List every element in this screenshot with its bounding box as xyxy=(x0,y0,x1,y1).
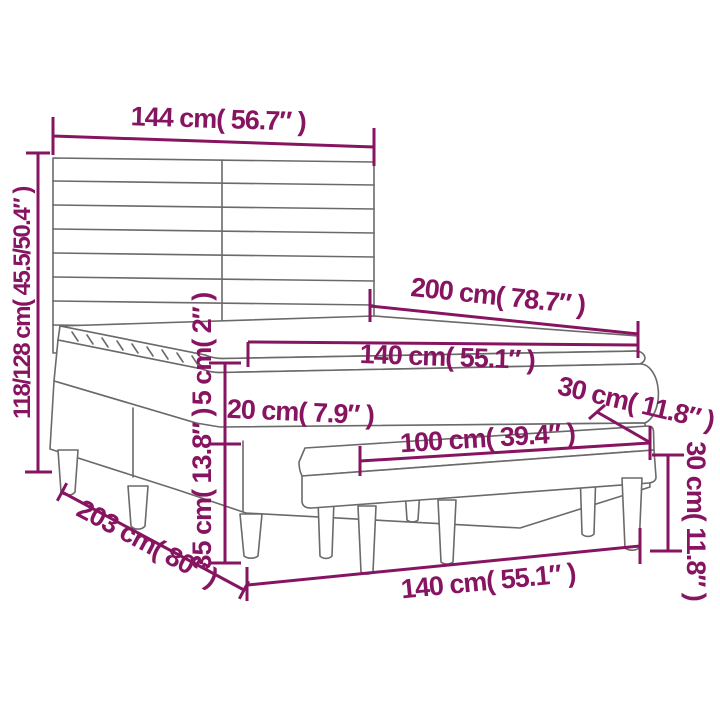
dimension-label-base-height: 35 cm( 13.8″ ) xyxy=(187,408,217,569)
dimension-label-headboard-height: 118/128 cm( 45.5/50.4″ ) xyxy=(9,187,36,419)
diagram-canvas: 144 cm( 56.7″ ) 118/128 cm( 45.5/50.4″ )… xyxy=(0,0,720,720)
dimension-bench-height: 30 cm( 11.8″ ) xyxy=(650,441,711,601)
bed-dimension-diagram: 144 cm( 56.7″ ) 118/128 cm( 45.5/50.4″ )… xyxy=(0,0,720,720)
dimension-label-bench-height: 30 cm( 11.8″ ) xyxy=(681,441,711,601)
dimension-label-mattress-width: 140 cm( 55.1″ ) xyxy=(359,339,535,375)
dimension-mattress-thickness: 20 cm( 7.9″ ) xyxy=(226,394,374,430)
dimension-label-topper-thickness: 5 cm( 2″ ) xyxy=(187,293,217,405)
dimension-label-mattress-thickness: 20 cm( 7.9″ ) xyxy=(226,394,374,430)
dimension-headboard-height: 118/128 cm( 45.5/50.4″ ) xyxy=(9,153,52,472)
dimension-label-headboard-width: 144 cm( 56.7″ ) xyxy=(130,101,306,136)
dimension-label-bed-width: 140 cm( 55.1″ ) xyxy=(400,558,577,605)
dimension-headboard-width: 144 cm( 56.7″ ) xyxy=(53,101,374,166)
